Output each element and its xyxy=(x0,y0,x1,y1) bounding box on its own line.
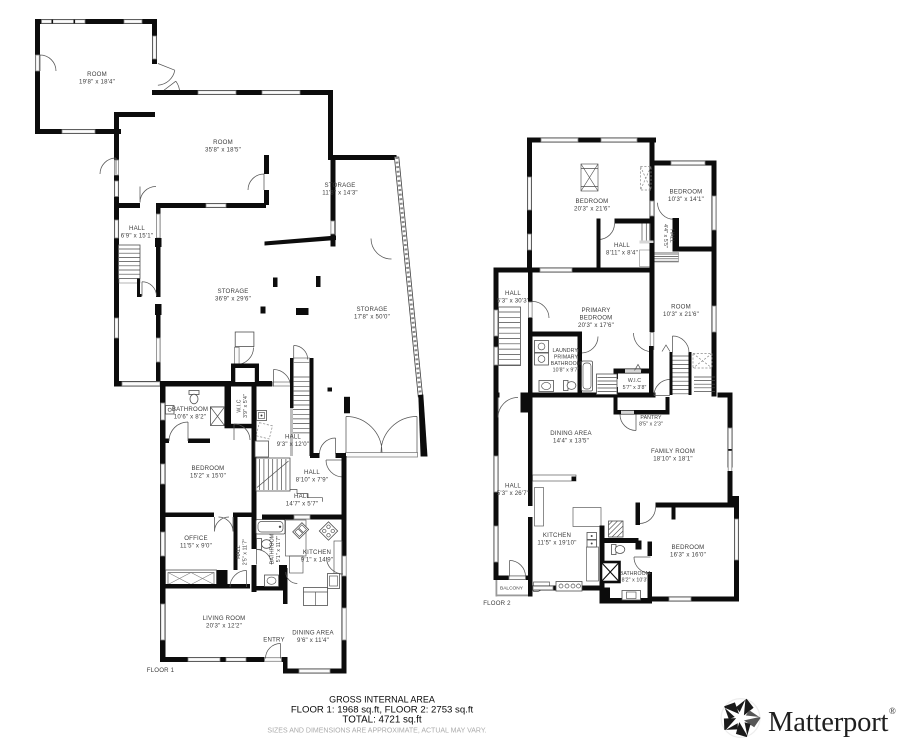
svg-text:FAMILY ROOM: FAMILY ROOM xyxy=(651,448,695,455)
svg-text:STORAGE: STORAGE xyxy=(356,306,387,313)
svg-text:36'9" x 29'6": 36'9" x 29'6" xyxy=(215,296,251,303)
svg-text:ENTRY: ENTRY xyxy=(263,637,285,644)
svg-text:LAUNDRY/: LAUNDRY/ xyxy=(553,348,580,354)
svg-text:PRIMARY: PRIMARY xyxy=(554,355,579,361)
svg-text:11'8" x 14'3": 11'8" x 14'3" xyxy=(322,190,358,197)
svg-text:BATHROOM: BATHROOM xyxy=(620,571,650,577)
svg-text:8'10" x 7'9": 8'10" x 7'9" xyxy=(296,477,328,484)
svg-text:10'6" x 8'2": 10'6" x 8'2" xyxy=(174,414,206,421)
svg-text:KITCHEN: KITCHEN xyxy=(543,532,571,539)
svg-text:KITCHEN: KITCHEN xyxy=(303,549,331,556)
svg-text:PRIMARY: PRIMARY xyxy=(581,307,610,314)
svg-text:HALL: HALL xyxy=(614,242,630,249)
svg-text:20'3" x 21'6": 20'3" x 21'6" xyxy=(574,206,610,213)
svg-text:10'3" x 14'1": 10'3" x 14'1" xyxy=(668,196,704,203)
svg-text:9'3" x 12'0": 9'3" x 12'0" xyxy=(277,441,309,448)
svg-text:16'3" x 16'0": 16'3" x 16'0" xyxy=(670,552,706,559)
svg-text:20'3" x 17'6": 20'3" x 17'6" xyxy=(578,322,614,329)
svg-text:2'5" x 11'7": 2'5" x 11'7" xyxy=(243,539,249,565)
svg-text:ROOM: ROOM xyxy=(213,139,233,146)
svg-text:14'7" x 5'7": 14'7" x 5'7" xyxy=(286,501,318,508)
svg-text:OFFICE: OFFICE xyxy=(184,535,208,542)
svg-text:8'5" x 2'3": 8'5" x 2'3" xyxy=(639,422,663,428)
svg-text:5'3" x 26'7": 5'3" x 26'7" xyxy=(497,490,529,497)
svg-text:FLOOR 1: FLOOR 1 xyxy=(147,667,175,674)
svg-text:20'3" x 12'2": 20'3" x 12'2" xyxy=(206,623,242,630)
svg-text:9'6" x 11'4": 9'6" x 11'4" xyxy=(297,637,329,644)
svg-text:35'8" x 18'5": 35'8" x 18'5" xyxy=(205,147,241,154)
svg-text:BEDROOM: BEDROOM xyxy=(580,315,613,322)
svg-text:HALL: HALL xyxy=(505,290,521,297)
svg-text:3'9" x 5'4": 3'9" x 5'4" xyxy=(243,394,249,418)
svg-text:5'3" x 30'3": 5'3" x 30'3" xyxy=(497,298,529,305)
svg-text:11'5" x 19'10": 11'5" x 19'10" xyxy=(537,540,576,547)
svg-text:GROSS INTERNAL AREA: GROSS INTERNAL AREA xyxy=(329,695,435,705)
svg-text:DINING AREA: DINING AREA xyxy=(550,430,592,437)
svg-text:LIVING ROOM: LIVING ROOM xyxy=(203,615,246,622)
svg-text:®: ® xyxy=(889,706,896,716)
svg-text:BATHROOM: BATHROOM xyxy=(270,534,276,564)
svg-text:BEDROOM: BEDROOM xyxy=(672,544,705,551)
svg-text:HALL: HALL xyxy=(236,545,242,558)
svg-text:HALL: HALL xyxy=(129,225,145,232)
svg-text:18'10" x 18'1": 18'10" x 18'1" xyxy=(653,456,693,463)
svg-text:15'2" x 15'0": 15'2" x 15'0" xyxy=(190,473,226,480)
svg-text:FLOOR 2: FLOOR 2 xyxy=(483,600,511,607)
svg-text:5'1" x 11'7": 5'1" x 11'7" xyxy=(276,536,282,562)
svg-text:BEDROOM: BEDROOM xyxy=(192,465,225,472)
svg-text:HALL: HALL xyxy=(285,434,301,441)
svg-text:STORAGE: STORAGE xyxy=(217,288,248,295)
svg-text:10'3" x 21'6": 10'3" x 21'6" xyxy=(663,311,699,318)
svg-text:W.I.C: W.I.C xyxy=(237,399,243,412)
svg-text:11'5" x 9'0": 11'5" x 9'0" xyxy=(180,543,212,550)
svg-text:HALL: HALL xyxy=(669,229,675,242)
svg-text:4'4" x 5'5": 4'4" x 5'5" xyxy=(662,224,668,248)
svg-text:14'4" x 13'5": 14'4" x 13'5" xyxy=(553,438,589,445)
svg-text:SIZES AND DIMENSIONS ARE APPRO: SIZES AND DIMENSIONS ARE APPROXIMATE, AC… xyxy=(267,728,486,735)
svg-text:STORAGE: STORAGE xyxy=(324,182,355,189)
svg-text:19'8" x 18'4": 19'8" x 18'4" xyxy=(79,79,115,86)
svg-text:8'2" x 10'3": 8'2" x 10'3" xyxy=(622,578,649,584)
svg-text:ROOM: ROOM xyxy=(671,304,691,311)
svg-text:BEDROOM: BEDROOM xyxy=(670,189,703,196)
svg-text:HALL: HALL xyxy=(294,493,310,500)
svg-text:17'8" x 50'0": 17'8" x 50'0" xyxy=(354,314,390,321)
svg-text:8'11" x 8'4": 8'11" x 8'4" xyxy=(606,250,638,257)
svg-text:W.I.C: W.I.C xyxy=(628,378,641,384)
svg-text:6'9" x 15'1": 6'9" x 15'1" xyxy=(121,233,153,240)
svg-text:HALL: HALL xyxy=(304,469,320,476)
svg-text:PANTRY: PANTRY xyxy=(640,415,662,421)
svg-text:DINING AREA: DINING AREA xyxy=(292,630,334,637)
svg-text:BATHROOM: BATHROOM xyxy=(172,406,208,413)
svg-text:5'7" x 3'8": 5'7" x 3'8" xyxy=(623,385,647,391)
svg-text:TOTAL: 4721 sq.ft: TOTAL: 4721 sq.ft xyxy=(342,715,421,726)
svg-text:HALL: HALL xyxy=(505,483,521,490)
svg-text:BALCONY: BALCONY xyxy=(500,586,524,592)
svg-text:9'1" x 14'9": 9'1" x 14'9" xyxy=(301,557,333,564)
svg-text:10'8" x 9'7": 10'8" x 9'7" xyxy=(553,368,580,374)
svg-text:BATHROOM: BATHROOM xyxy=(551,361,581,367)
svg-text:BEDROOM: BEDROOM xyxy=(576,198,609,205)
svg-text:Matterport: Matterport xyxy=(768,707,889,738)
svg-text:ROOM: ROOM xyxy=(87,71,107,78)
